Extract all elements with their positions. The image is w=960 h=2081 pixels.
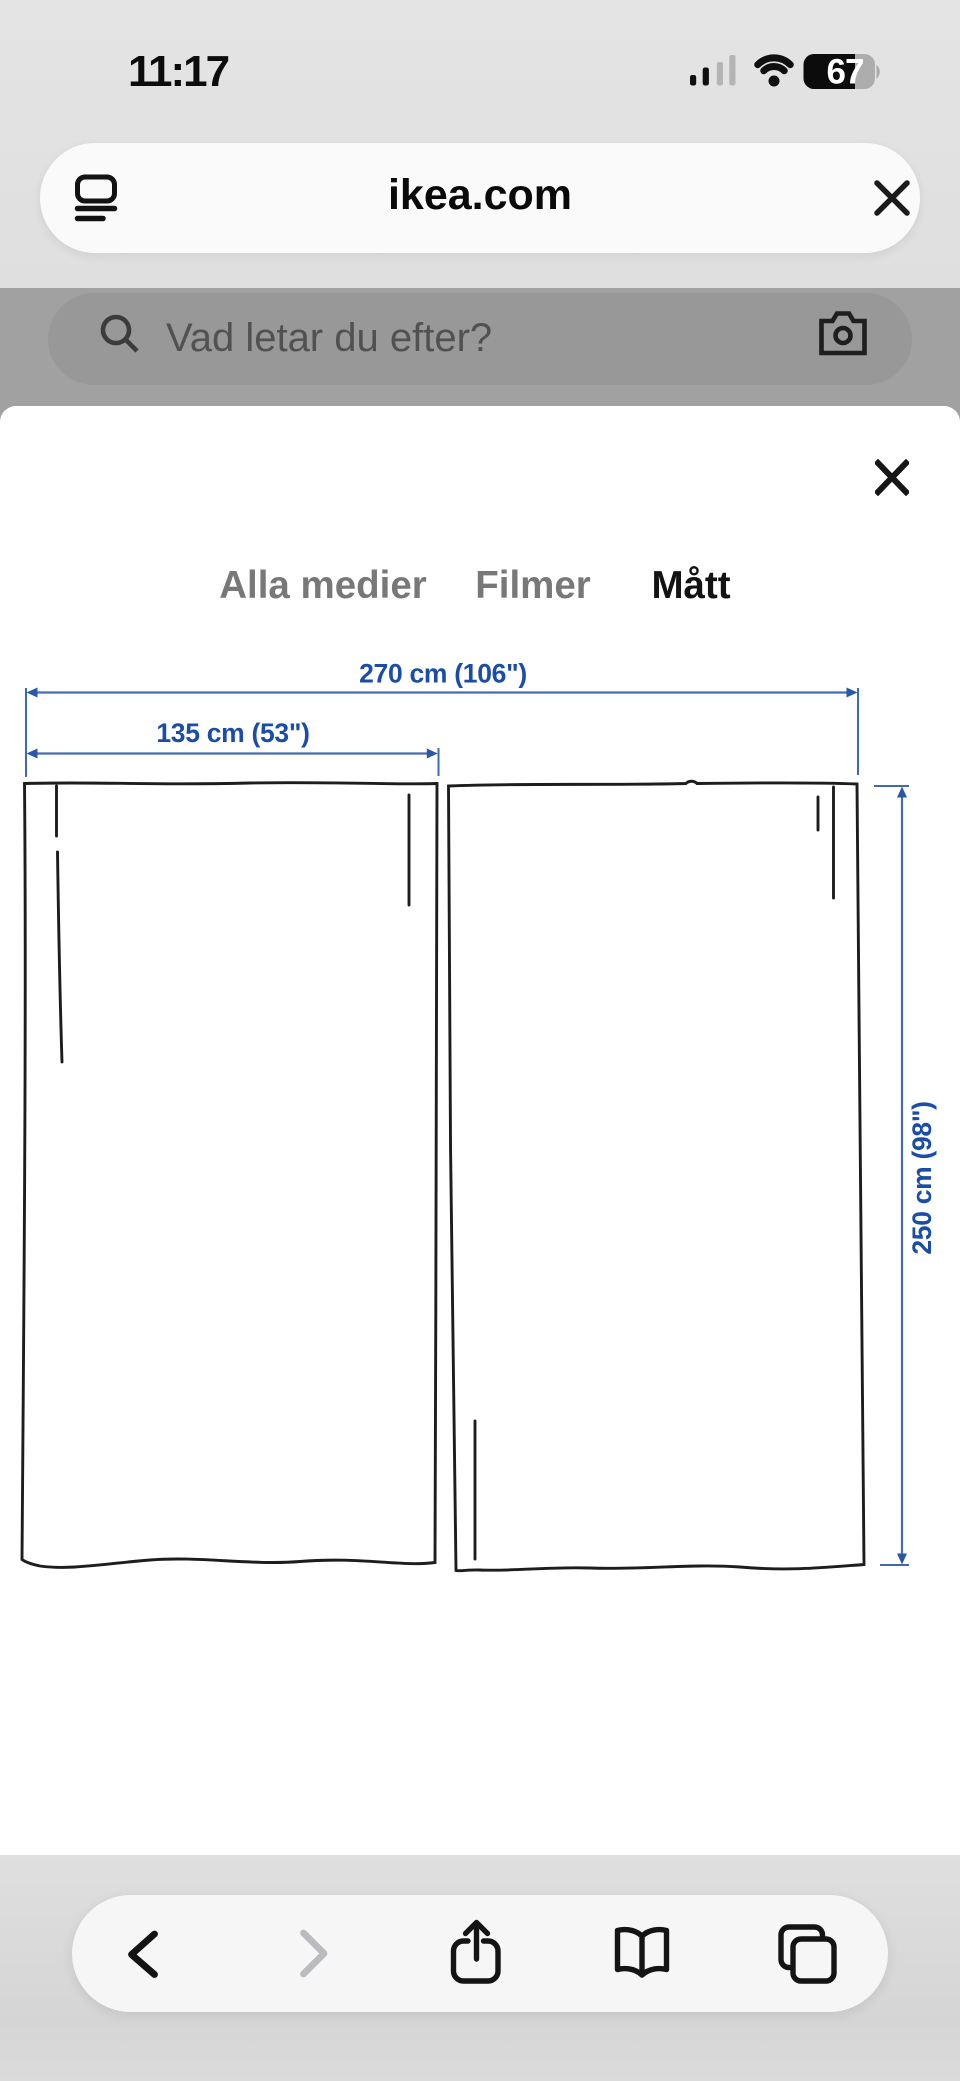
svg-text:270 cm (106"): 270 cm (106") bbox=[359, 659, 527, 689]
svg-text:135 cm (53"): 135 cm (53") bbox=[156, 718, 309, 748]
svg-text:67: 67 bbox=[827, 53, 864, 92]
svg-text:250 cm (98"): 250 cm (98") bbox=[907, 1101, 937, 1254]
